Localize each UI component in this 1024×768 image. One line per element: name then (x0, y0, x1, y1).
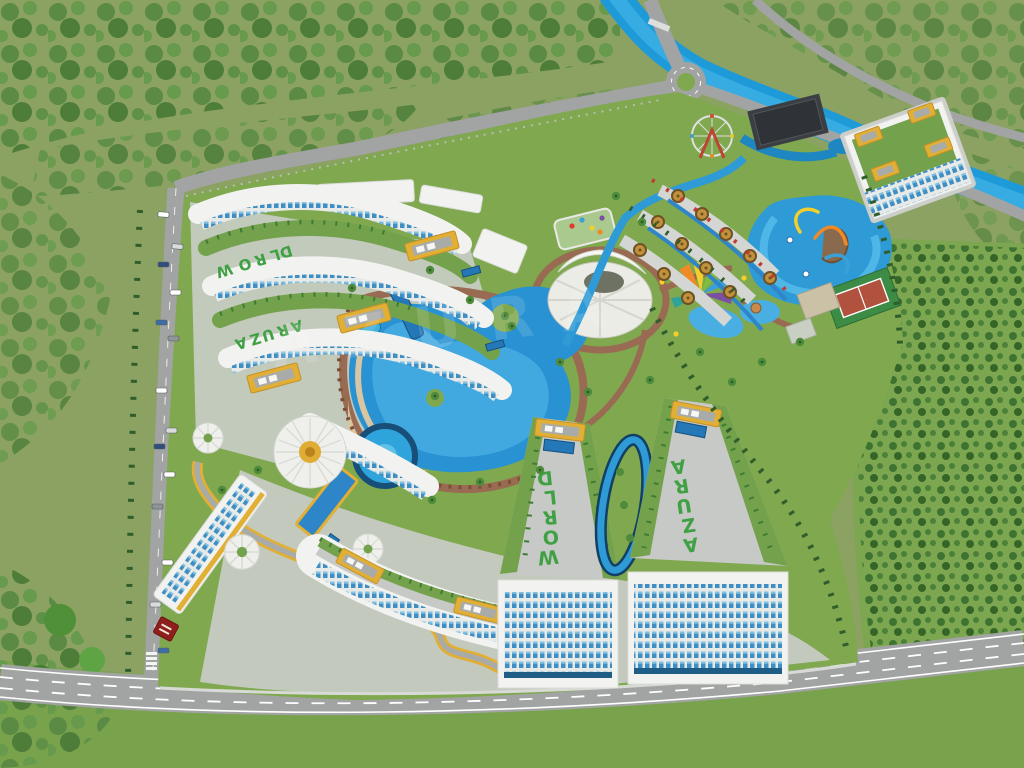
roundabout-island (677, 73, 695, 91)
garden-gazebo (193, 423, 223, 453)
resort-masterplan-render: WORLD AZURA DLROW (0, 0, 1024, 768)
mushroom-fountain (751, 303, 761, 313)
